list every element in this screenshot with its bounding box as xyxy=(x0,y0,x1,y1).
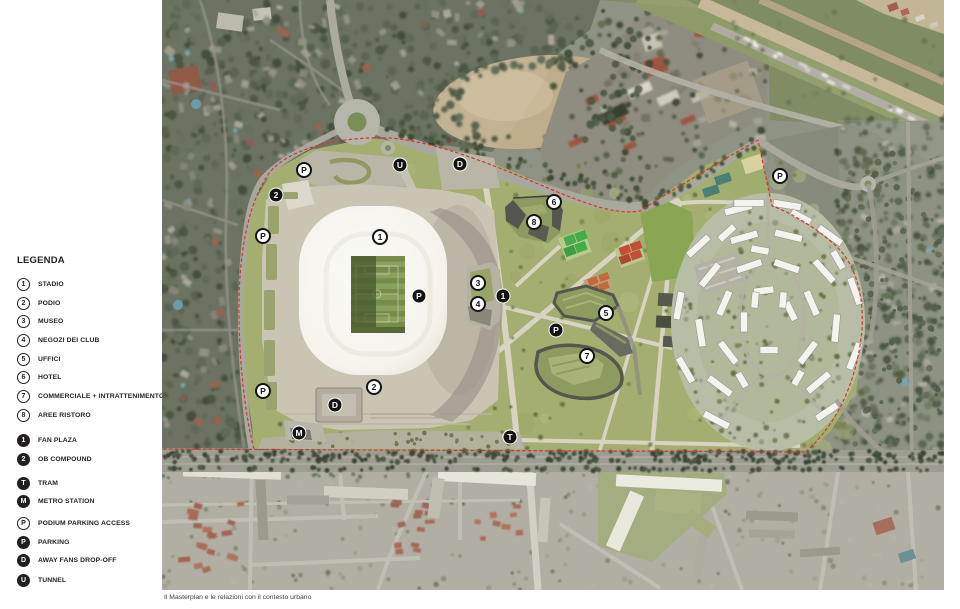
svg-text:P: P xyxy=(260,386,266,396)
svg-text:P: P xyxy=(301,165,307,175)
svg-text:3: 3 xyxy=(476,278,481,288)
svg-text:P: P xyxy=(777,171,783,181)
svg-text:U: U xyxy=(397,160,403,170)
svg-text:1: 1 xyxy=(501,291,506,301)
svg-text:2: 2 xyxy=(372,382,377,392)
svg-text:8: 8 xyxy=(532,217,537,227)
svg-text:D: D xyxy=(457,159,463,169)
svg-text:M: M xyxy=(295,428,302,438)
svg-text:D: D xyxy=(332,400,338,410)
svg-text:5: 5 xyxy=(604,308,609,318)
svg-text:T: T xyxy=(507,432,513,442)
svg-text:P: P xyxy=(416,291,422,301)
svg-text:4: 4 xyxy=(476,299,481,309)
svg-text:P: P xyxy=(553,325,559,335)
svg-text:2: 2 xyxy=(274,190,279,200)
svg-text:P: P xyxy=(260,231,266,241)
svg-text:7: 7 xyxy=(585,351,590,361)
svg-text:1: 1 xyxy=(378,232,383,242)
svg-text:6: 6 xyxy=(552,197,557,207)
